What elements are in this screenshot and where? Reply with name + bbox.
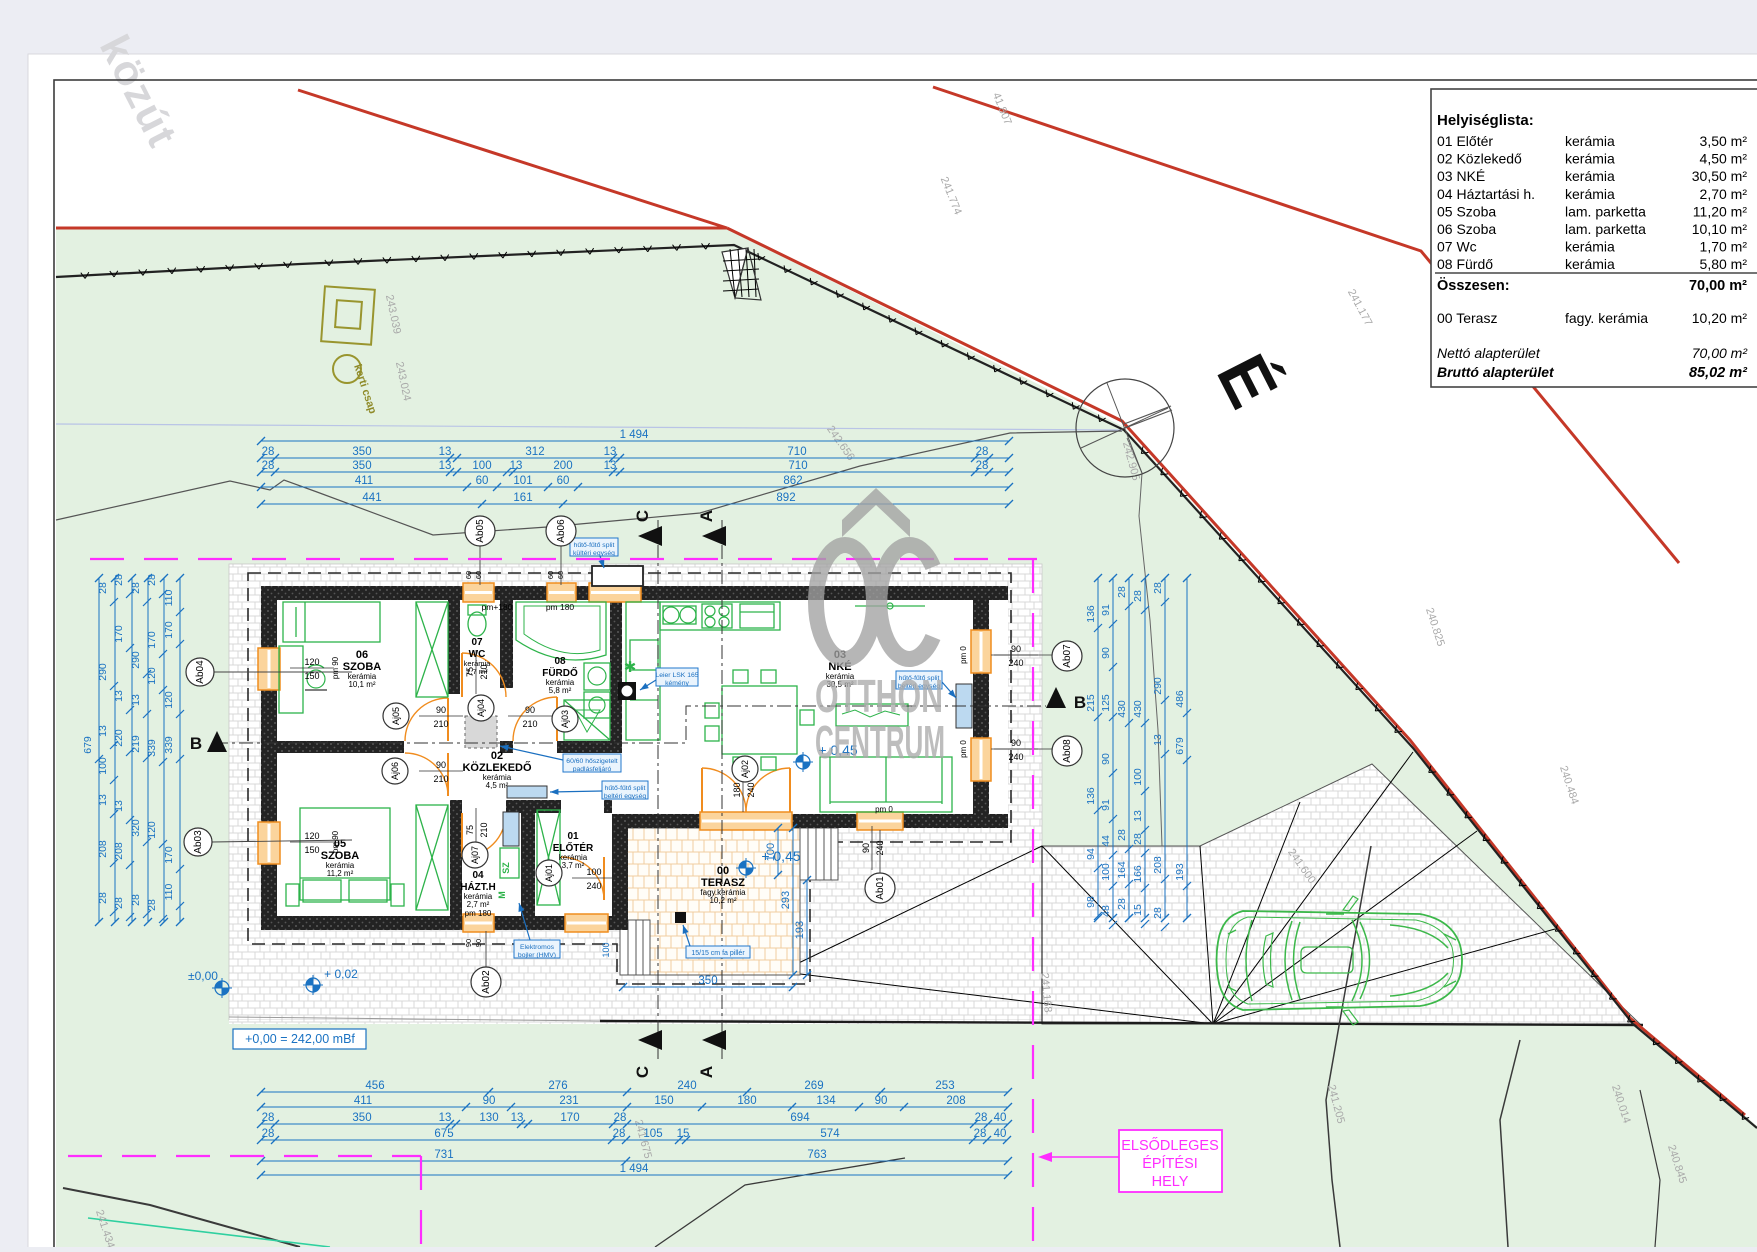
svg-text:28: 28 xyxy=(1132,590,1144,602)
svg-text:A: A xyxy=(697,1066,716,1078)
svg-text:40: 40 xyxy=(994,1112,1007,1124)
svg-text:731: 731 xyxy=(434,1149,453,1161)
svg-text:90: 90 xyxy=(861,843,871,853)
svg-text:Aj03: Aj03 xyxy=(560,710,570,728)
svg-text:13: 13 xyxy=(1132,810,1144,822)
svg-text:beltéri egység: beltéri egység xyxy=(604,793,647,800)
svg-text:170: 170 xyxy=(163,621,175,639)
svg-text:10,1 m²: 10,1 m² xyxy=(348,680,375,689)
svg-text:574: 574 xyxy=(820,1128,840,1140)
svg-text:04 Háztartási h.: 04 Háztartási h. xyxy=(1437,186,1535,202)
svg-text:486: 486 xyxy=(1174,690,1186,708)
svg-text:1 494: 1 494 xyxy=(620,429,649,441)
svg-text:3,50 m²: 3,50 m² xyxy=(1700,133,1748,149)
svg-text:91: 91 xyxy=(1100,799,1112,811)
svg-text:350: 350 xyxy=(698,975,717,987)
svg-text:kerámia: kerámia xyxy=(1565,256,1615,272)
svg-text:290: 290 xyxy=(1152,677,1164,695)
svg-text:13: 13 xyxy=(439,1112,452,1124)
svg-text:94: 94 xyxy=(1085,848,1097,860)
svg-text:28: 28 xyxy=(975,1112,988,1124)
svg-text:120: 120 xyxy=(146,667,158,685)
svg-text:Aj05: Aj05 xyxy=(391,707,401,725)
svg-text:240: 240 xyxy=(1008,658,1023,668)
svg-text:48: 48 xyxy=(1100,905,1112,917)
svg-text:276: 276 xyxy=(548,1080,567,1092)
svg-text:10,20 m²: 10,20 m² xyxy=(1692,310,1748,326)
svg-text:kerámia: kerámia xyxy=(1565,239,1615,255)
svg-text:C: C xyxy=(633,510,652,522)
svg-text:208: 208 xyxy=(1152,856,1164,874)
svg-text:293: 293 xyxy=(780,891,792,909)
svg-text:70,00 m²: 70,00 m² xyxy=(1692,345,1749,361)
svg-text:fagy. kerámia: fagy. kerámia xyxy=(1565,310,1648,326)
svg-text:B: B xyxy=(190,734,202,753)
svg-text:07 Wc: 07 Wc xyxy=(1437,239,1477,255)
svg-text:40: 40 xyxy=(994,1128,1007,1140)
svg-text:13: 13 xyxy=(439,446,452,458)
svg-text:13: 13 xyxy=(510,460,523,472)
svg-text:13: 13 xyxy=(113,690,125,702)
svg-text:30,50 m²: 30,50 m² xyxy=(1692,168,1748,184)
svg-text:07: 07 xyxy=(471,637,483,648)
svg-text:kerámia: kerámia xyxy=(1565,168,1615,184)
svg-text:91: 91 xyxy=(1100,604,1112,616)
svg-text:90: 90 xyxy=(875,1095,888,1107)
svg-text:90: 90 xyxy=(436,705,446,715)
svg-text:208: 208 xyxy=(97,840,109,858)
svg-text:170: 170 xyxy=(560,1112,579,1124)
svg-text:180: 180 xyxy=(737,1095,756,1107)
svg-text:pm 90: pm 90 xyxy=(331,830,340,853)
svg-text:ELSŐDLEGES: ELSŐDLEGES xyxy=(1121,1137,1219,1154)
svg-text:13: 13 xyxy=(1152,734,1164,746)
svg-text:90: 90 xyxy=(483,1095,496,1107)
svg-text:166: 166 xyxy=(1132,865,1144,883)
svg-text:hűtő-fűtő split: hűtő-fűtő split xyxy=(605,785,646,792)
svg-text:Összesen:: Összesen: xyxy=(1437,277,1510,294)
svg-text:28: 28 xyxy=(974,1128,987,1140)
svg-text:Ab03: Ab03 xyxy=(193,830,204,854)
svg-text:00: 00 xyxy=(717,865,729,877)
svg-text:170: 170 xyxy=(146,631,158,649)
svg-text:01: 01 xyxy=(567,831,579,842)
svg-text:A: A xyxy=(697,510,716,522)
svg-text:SZ: SZ xyxy=(501,862,511,874)
svg-text:Nettó alapterület: Nettó alapterület xyxy=(1437,345,1541,361)
svg-text:694: 694 xyxy=(790,1112,810,1124)
svg-text:28: 28 xyxy=(113,574,125,586)
svg-text:10,10 m²: 10,10 m² xyxy=(1692,221,1748,237)
svg-text:60: 60 xyxy=(476,475,489,487)
svg-text:OTTHON: OTTHON xyxy=(815,670,943,722)
svg-text:210: 210 xyxy=(433,719,448,729)
svg-text:Ab01: Ab01 xyxy=(875,876,886,900)
svg-text:240: 240 xyxy=(586,881,601,891)
svg-text:430: 430 xyxy=(1116,700,1128,718)
svg-text:862: 862 xyxy=(783,475,802,487)
svg-text:28: 28 xyxy=(146,574,158,586)
svg-text:180: 180 xyxy=(732,782,742,797)
svg-text:411: 411 xyxy=(355,475,373,487)
svg-text:13: 13 xyxy=(604,446,617,458)
svg-text:kémény: kémény xyxy=(665,680,689,687)
svg-text:90: 90 xyxy=(474,939,483,947)
svg-text:28: 28 xyxy=(976,460,989,472)
svg-text:08: 08 xyxy=(554,656,566,667)
svg-text:28: 28 xyxy=(130,894,142,906)
svg-text:98: 98 xyxy=(1085,896,1097,908)
svg-text:04: 04 xyxy=(472,870,484,881)
svg-text:105: 105 xyxy=(643,1128,662,1140)
svg-text:15/15 cm fa pillér: 15/15 cm fa pillér xyxy=(691,950,745,957)
svg-text:13: 13 xyxy=(604,460,617,472)
svg-text:90: 90 xyxy=(464,939,473,947)
svg-text:4,5 m²: 4,5 m² xyxy=(486,781,509,790)
svg-text:164: 164 xyxy=(1116,861,1128,879)
svg-text:28: 28 xyxy=(262,1112,275,1124)
svg-text:02: 02 xyxy=(491,750,503,762)
svg-text:28: 28 xyxy=(1132,833,1144,845)
svg-text:70,00 m²: 70,00 m² xyxy=(1689,278,1747,294)
svg-text:90: 90 xyxy=(436,760,446,770)
svg-text:253: 253 xyxy=(935,1080,954,1092)
svg-text:kerámia: kerámia xyxy=(1565,151,1615,167)
svg-text:320: 320 xyxy=(130,819,142,837)
svg-text:411: 411 xyxy=(354,1095,372,1107)
svg-text:M: M xyxy=(497,891,507,899)
svg-text:120: 120 xyxy=(304,831,319,841)
svg-text:+0,00 = 242,00 mBf: +0,00 = 242,00 mBf xyxy=(245,1032,355,1046)
svg-text:Aj06: Aj06 xyxy=(390,762,400,780)
svg-text:240: 240 xyxy=(746,782,756,797)
svg-text:03 NKÉ: 03 NKÉ xyxy=(1437,168,1485,184)
svg-text:60/60 hőszigetelt: 60/60 hőszigetelt xyxy=(566,758,618,765)
svg-text:170: 170 xyxy=(163,846,175,864)
svg-text:28: 28 xyxy=(1116,829,1128,841)
svg-text:120: 120 xyxy=(304,657,319,667)
svg-text:padlásfeljáró: padlásfeljáró xyxy=(573,766,612,773)
svg-text:210: 210 xyxy=(479,822,489,837)
svg-text:C: C xyxy=(633,1066,652,1078)
svg-text:210: 210 xyxy=(522,719,537,729)
svg-text:679: 679 xyxy=(1174,737,1186,755)
svg-text:HELY: HELY xyxy=(1152,1174,1189,1190)
svg-text:15: 15 xyxy=(1132,904,1144,916)
svg-text:136: 136 xyxy=(1085,787,1097,805)
svg-text:1 494: 1 494 xyxy=(620,1163,649,1175)
svg-text:350: 350 xyxy=(352,446,371,458)
svg-text:100: 100 xyxy=(472,460,491,472)
svg-text:28: 28 xyxy=(262,446,275,458)
svg-text:2,7 m²: 2,7 m² xyxy=(467,900,490,909)
svg-text:350: 350 xyxy=(352,1112,371,1124)
svg-text:110: 110 xyxy=(163,883,175,900)
svg-text:210: 210 xyxy=(479,664,489,679)
svg-text:pm 0: pm 0 xyxy=(959,646,968,664)
svg-text:100: 100 xyxy=(601,942,611,957)
svg-text:pm+180: pm+180 xyxy=(482,602,513,612)
svg-text:120: 120 xyxy=(163,691,175,709)
svg-text:Elektromos: Elektromos xyxy=(520,944,555,951)
svg-text:kerámia: kerámia xyxy=(1565,133,1615,149)
svg-text:CENTRUM: CENTRUM xyxy=(815,716,945,768)
svg-text:28: 28 xyxy=(1152,582,1164,594)
svg-text:125: 125 xyxy=(1100,694,1112,712)
svg-text:28: 28 xyxy=(614,1112,627,1124)
svg-text:193: 193 xyxy=(1174,863,1186,881)
svg-text:215: 215 xyxy=(1085,694,1097,712)
svg-text:Ab05: Ab05 xyxy=(475,519,486,543)
svg-text:Helyiséglista:: Helyiséglista: xyxy=(1437,112,1534,129)
svg-text:3,7 m²: 3,7 m² xyxy=(562,861,585,870)
svg-text:28: 28 xyxy=(262,1128,275,1140)
svg-text:Leier LSK 165: Leier LSK 165 xyxy=(655,672,698,679)
svg-text:13: 13 xyxy=(439,460,452,472)
svg-text:90: 90 xyxy=(1100,647,1112,659)
svg-text:1,70 m²: 1,70 m² xyxy=(1700,239,1748,255)
svg-text:100: 100 xyxy=(586,867,601,877)
svg-text:100: 100 xyxy=(1132,768,1144,786)
svg-text:13: 13 xyxy=(97,725,109,737)
svg-text:02 Közlekedő: 02 Közlekedő xyxy=(1437,151,1522,167)
svg-text:28: 28 xyxy=(262,460,275,472)
svg-text:05 Szoba: 05 Szoba xyxy=(1437,203,1496,219)
svg-text:Ab08: Ab08 xyxy=(1062,739,1073,763)
svg-text:290: 290 xyxy=(97,663,109,681)
svg-text:763: 763 xyxy=(807,1149,826,1161)
svg-text:Aj01: Aj01 xyxy=(544,864,554,882)
svg-text:13: 13 xyxy=(97,794,109,806)
svg-text:350: 350 xyxy=(352,460,371,472)
svg-text:pm 0: pm 0 xyxy=(959,740,968,758)
svg-text:90: 90 xyxy=(1011,738,1021,748)
svg-text:710: 710 xyxy=(788,460,807,472)
svg-text:240: 240 xyxy=(677,1080,696,1092)
svg-text:60: 60 xyxy=(546,571,555,579)
svg-text:75: 75 xyxy=(465,825,475,835)
svg-text:08 Fürdő: 08 Fürdő xyxy=(1437,256,1493,272)
svg-text:269: 269 xyxy=(804,1080,823,1092)
svg-text:312: 312 xyxy=(525,446,544,458)
svg-text:lam. parketta: lam. parketta xyxy=(1565,221,1646,237)
svg-text:60: 60 xyxy=(557,475,570,487)
svg-text:10,2 m²: 10,2 m² xyxy=(709,896,736,905)
svg-text:441: 441 xyxy=(362,492,381,504)
svg-text:kerámia: kerámia xyxy=(1565,186,1615,202)
svg-text:lam. parketta: lam. parketta xyxy=(1565,203,1646,219)
svg-text:100: 100 xyxy=(765,843,777,861)
svg-text:101: 101 xyxy=(513,475,532,487)
svg-text:28: 28 xyxy=(97,582,109,594)
svg-text:00 Terasz: 00 Terasz xyxy=(1437,310,1497,326)
svg-text:85,02 m²: 85,02 m² xyxy=(1689,365,1748,381)
svg-text:Ab04: Ab04 xyxy=(195,660,206,684)
svg-text:13: 13 xyxy=(511,1112,524,1124)
svg-text:90: 90 xyxy=(1100,753,1112,765)
svg-text:28: 28 xyxy=(976,446,989,458)
svg-text:pm 90: pm 90 xyxy=(331,656,340,679)
svg-text:120: 120 xyxy=(146,821,158,839)
svg-text:240: 240 xyxy=(1008,752,1023,762)
svg-text:pm 180: pm 180 xyxy=(465,909,492,918)
svg-text:150: 150 xyxy=(654,1095,673,1107)
svg-text:200: 200 xyxy=(553,460,572,472)
svg-text:60: 60 xyxy=(556,571,565,579)
svg-text:pm 180: pm 180 xyxy=(546,602,575,612)
svg-text:679: 679 xyxy=(82,736,94,754)
svg-text:90: 90 xyxy=(1011,644,1021,654)
svg-text:±0,00: ±0,00 xyxy=(188,969,218,983)
svg-text:Aj02: Aj02 xyxy=(740,760,750,778)
svg-text:456: 456 xyxy=(365,1080,384,1092)
svg-text:13: 13 xyxy=(113,800,125,812)
svg-text:11,20 m²: 11,20 m² xyxy=(1693,203,1748,219)
svg-text:90: 90 xyxy=(525,705,535,715)
svg-text:339: 339 xyxy=(146,739,158,757)
svg-text:208: 208 xyxy=(113,842,125,860)
svg-text:Aj04: Aj04 xyxy=(476,699,486,717)
svg-text:Ab06: Ab06 xyxy=(556,519,567,543)
svg-text:161: 161 xyxy=(513,492,532,504)
svg-text:Ab02: Ab02 xyxy=(481,970,492,994)
svg-text:06 Szoba: 06 Szoba xyxy=(1437,221,1496,237)
svg-text:892: 892 xyxy=(776,492,795,504)
svg-text:170: 170 xyxy=(113,625,125,643)
svg-text:5,80 m²: 5,80 m² xyxy=(1700,256,1748,272)
svg-text:bojler (HMV): bojler (HMV) xyxy=(518,952,556,959)
svg-text:150: 150 xyxy=(304,845,319,855)
svg-text:28: 28 xyxy=(613,1128,626,1140)
svg-text:290: 290 xyxy=(130,651,142,669)
svg-text:60: 60 xyxy=(474,571,483,579)
svg-text:ÉPÍTÉSI: ÉPÍTÉSI xyxy=(1142,1155,1198,1172)
svg-text:✱: ✱ xyxy=(624,659,637,676)
svg-text:hűtő-fűtő split: hűtő-fűtő split xyxy=(574,542,615,549)
svg-text:pm 0: pm 0 xyxy=(875,805,893,814)
svg-text:130: 130 xyxy=(479,1112,498,1124)
svg-text:2,70 m²: 2,70 m² xyxy=(1700,186,1748,202)
svg-text:28: 28 xyxy=(1116,586,1128,598)
svg-text:60: 60 xyxy=(464,571,473,579)
svg-text:01 Előtér: 01 Előtér xyxy=(1437,133,1493,149)
svg-text:28: 28 xyxy=(97,892,109,904)
svg-text:134: 134 xyxy=(816,1095,836,1107)
svg-text:5,8 m²: 5,8 m² xyxy=(549,686,572,695)
svg-text:75: 75 xyxy=(465,667,475,677)
svg-text:28: 28 xyxy=(1116,898,1128,910)
svg-text:15: 15 xyxy=(677,1128,690,1140)
svg-text:339: 339 xyxy=(163,736,175,754)
svg-text:150: 150 xyxy=(304,671,319,681)
svg-text:kültéri egység: kültéri egység xyxy=(573,550,615,557)
svg-text:28: 28 xyxy=(113,897,125,909)
svg-text:06: 06 xyxy=(356,649,368,661)
svg-text:Ab07: Ab07 xyxy=(1062,644,1073,668)
svg-text:208: 208 xyxy=(946,1095,965,1107)
svg-text:710: 710 xyxy=(787,446,806,458)
svg-text:231: 231 xyxy=(559,1095,578,1107)
svg-text:13: 13 xyxy=(130,694,142,706)
svg-text:210: 210 xyxy=(433,774,448,784)
svg-text:Bruttó alapterület: Bruttó alapterület xyxy=(1437,364,1555,380)
svg-text:430: 430 xyxy=(1132,700,1144,718)
svg-text:675: 675 xyxy=(434,1128,453,1140)
svg-text:4,50 m²: 4,50 m² xyxy=(1700,151,1748,167)
svg-text:44: 44 xyxy=(1100,835,1112,847)
svg-text:136: 136 xyxy=(1085,605,1097,623)
svg-text:28: 28 xyxy=(146,899,158,911)
svg-text:11,2 m²: 11,2 m² xyxy=(327,869,354,878)
svg-text:193: 193 xyxy=(794,921,806,939)
svg-text:+ 0,02: + 0,02 xyxy=(324,967,358,981)
svg-text:28: 28 xyxy=(1152,907,1164,919)
svg-text:Aj07: Aj07 xyxy=(470,846,480,864)
svg-text:100: 100 xyxy=(1100,863,1112,881)
